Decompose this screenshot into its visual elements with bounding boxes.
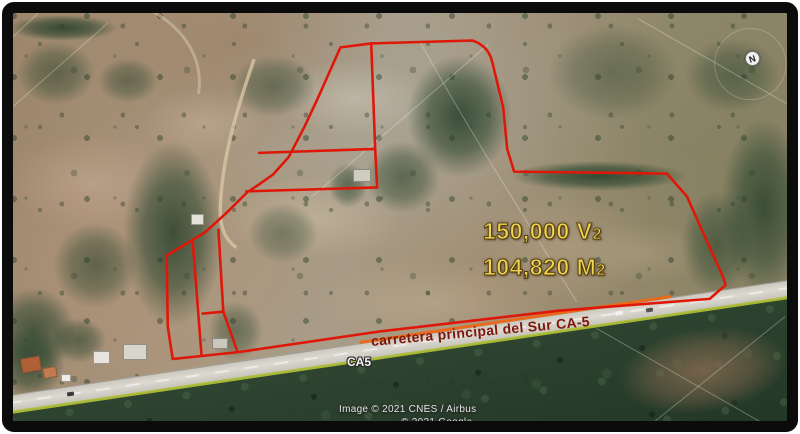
- area-unit-sub: 2: [592, 226, 601, 243]
- satellite-map: 150,000V2 104,820M2 carretera principal …: [3, 3, 797, 431]
- map-overlay: [3, 3, 797, 431]
- area-measurement-meters: 104,820M2: [483, 251, 606, 287]
- area-unit: M: [577, 254, 597, 280]
- imagery-attribution-partial: © 2021 Google: [401, 417, 472, 428]
- north-compass-icon: N: [745, 51, 760, 66]
- map-figure: 150,000V2 104,820M2 carretera principal …: [0, 0, 800, 434]
- area-measurement-varas: 150,000V2: [483, 215, 606, 251]
- route-shield-ca5: CA5: [347, 355, 371, 369]
- north-letter: N: [748, 53, 757, 65]
- area-value: 150,000: [483, 218, 570, 244]
- area-value: 104,820: [483, 254, 570, 280]
- area-unit-sub: 2: [596, 262, 605, 279]
- area-label: 150,000V2 104,820M2: [483, 215, 606, 287]
- imagery-attribution: Image © 2021 CNES / Airbus: [339, 404, 476, 415]
- area-unit: V: [577, 218, 593, 244]
- survey-trail-lines: [3, 3, 797, 425]
- dirt-path: [152, 11, 254, 248]
